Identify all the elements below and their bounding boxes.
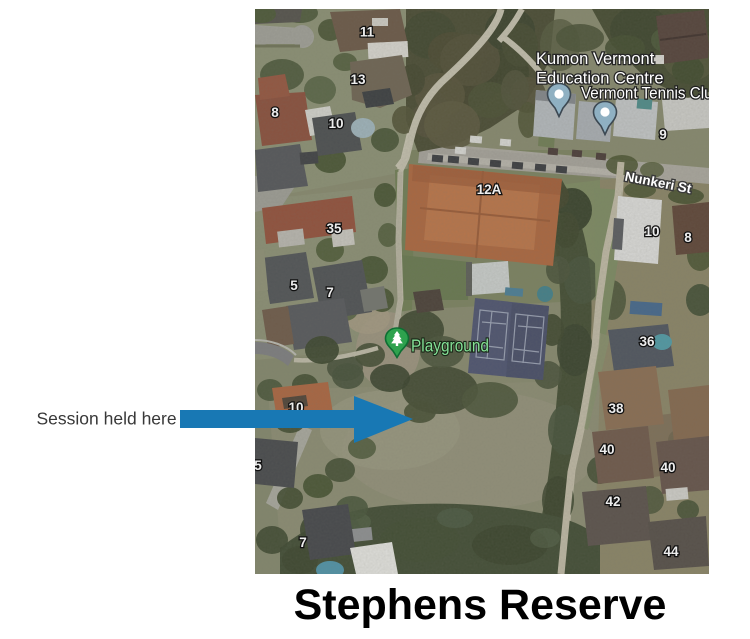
- svg-text:Session held here: Session held here: [37, 409, 177, 429]
- svg-text:13: 13: [350, 72, 366, 87]
- svg-text:8: 8: [684, 230, 692, 245]
- svg-text:42: 42: [605, 494, 620, 509]
- svg-text:7: 7: [299, 535, 307, 550]
- svg-text:10: 10: [644, 224, 659, 239]
- svg-text:38: 38: [608, 401, 624, 416]
- svg-text:5: 5: [254, 458, 262, 473]
- svg-text:12A: 12A: [477, 182, 502, 197]
- svg-text:Vermont Tennis Club: Vermont Tennis Club: [581, 84, 721, 103]
- svg-text:Stephens Reserve: Stephens Reserve: [294, 581, 667, 629]
- svg-text:Playground: Playground: [411, 336, 489, 356]
- svg-text:35: 35: [326, 221, 342, 236]
- svg-text:10: 10: [328, 116, 343, 131]
- svg-text:44: 44: [663, 544, 679, 559]
- svg-text:9: 9: [659, 127, 667, 142]
- svg-text:Kumon Vermont: Kumon Vermont: [536, 50, 655, 68]
- svg-text:36: 36: [639, 334, 655, 349]
- svg-text:11: 11: [360, 25, 375, 40]
- svg-text:5: 5: [290, 278, 298, 293]
- svg-text:7: 7: [326, 285, 334, 300]
- svg-text:8: 8: [271, 105, 279, 120]
- svg-text:40: 40: [599, 442, 614, 457]
- svg-text:40: 40: [660, 460, 675, 475]
